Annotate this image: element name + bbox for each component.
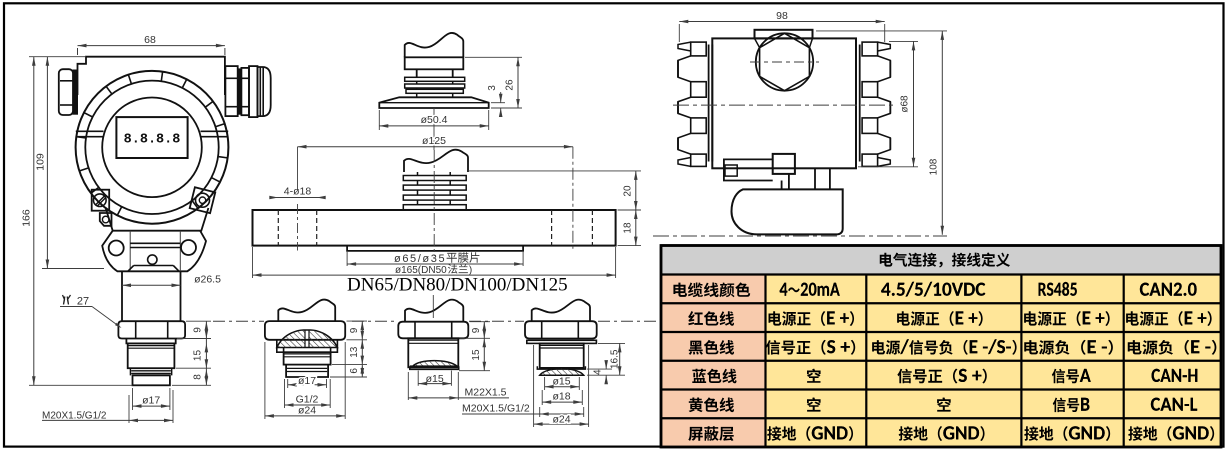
svg-text:13: 13 — [349, 346, 360, 358]
svg-text:6: 6 — [349, 368, 360, 374]
svg-text:4-ø18: 4-ø18 — [284, 186, 312, 198]
svg-text:4: 4 — [592, 369, 603, 375]
svg-text:M20X1.5/G1/2: M20X1.5/G1/2 — [462, 403, 530, 415]
svg-text:26: 26 — [505, 79, 516, 91]
svg-text:15: 15 — [193, 350, 204, 362]
svg-text:ø15: ø15 — [552, 375, 570, 387]
svg-text:15: 15 — [471, 349, 482, 361]
svg-text:9: 9 — [193, 327, 204, 333]
svg-text:8.8.8.8: 8.8.8.8 — [124, 133, 181, 148]
svg-text:8: 8 — [193, 374, 204, 380]
svg-text:9: 9 — [471, 327, 482, 333]
svg-text:ø68: ø68 — [900, 95, 911, 113]
svg-text:ø26.5: ø26.5 — [194, 274, 221, 286]
svg-text:ø17: ø17 — [298, 375, 316, 387]
svg-text:ø24: ø24 — [298, 404, 316, 416]
svg-text:109: 109 — [34, 153, 46, 171]
svg-text:ø17: ø17 — [142, 394, 160, 406]
svg-text:ø125: ø125 — [422, 135, 446, 147]
svg-text:ø15: ø15 — [426, 373, 444, 385]
svg-text:9: 9 — [349, 327, 360, 333]
svg-text:3: 3 — [487, 85, 498, 91]
svg-text:68: 68 — [144, 34, 156, 46]
svg-text:DN65/DN80/DN100/DN125: DN65/DN80/DN100/DN125 — [347, 275, 568, 296]
svg-text:27: 27 — [77, 296, 89, 308]
svg-text:108: 108 — [929, 158, 940, 175]
svg-text:ø18: ø18 — [552, 391, 570, 403]
svg-text:18: 18 — [622, 222, 633, 234]
svg-text:M22X1.5: M22X1.5 — [464, 387, 506, 399]
svg-text:ø65/ø35: ø65/ø35 — [394, 253, 446, 265]
svg-text:16.5: 16.5 — [610, 349, 621, 369]
svg-text:98: 98 — [776, 10, 788, 22]
svg-text:ø50.4: ø50.4 — [421, 114, 448, 126]
svg-text:166: 166 — [21, 209, 33, 227]
svg-text:M20X1.5/G1/2: M20X1.5/G1/2 — [42, 411, 107, 422]
svg-text:ø24: ø24 — [552, 414, 570, 426]
svg-text:20: 20 — [622, 185, 633, 197]
